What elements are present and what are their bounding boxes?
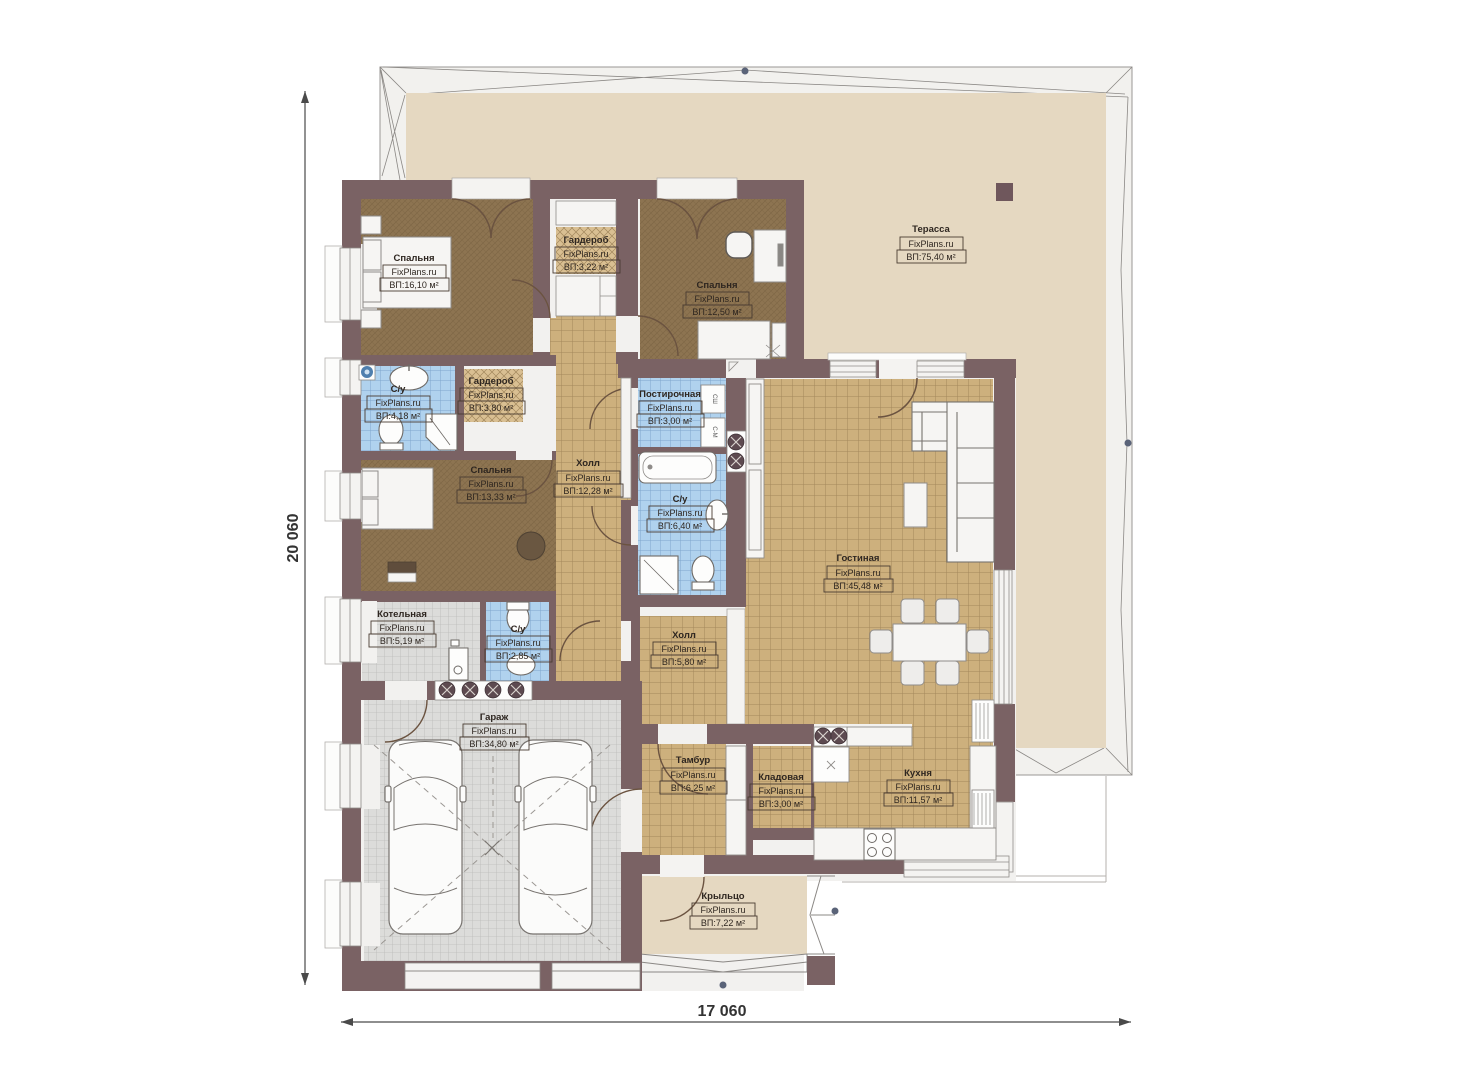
svg-text:ВП:12,50 м²: ВП:12,50 м² [692, 307, 741, 317]
svg-text:ВП:5,80 м²: ВП:5,80 м² [662, 657, 706, 667]
svg-text:ВП:4,18 м²: ВП:4,18 м² [376, 411, 420, 421]
svg-text:ВП:75,40 м²: ВП:75,40 м² [906, 252, 955, 262]
svg-text:Кладовая: Кладовая [758, 772, 804, 783]
svg-text:FixPlans.ru: FixPlans.ru [758, 786, 803, 796]
svg-text:FixPlans.ru: FixPlans.ru [468, 479, 513, 489]
svg-text:Гараж: Гараж [480, 712, 509, 723]
svg-text:FixPlans.ru: FixPlans.ru [895, 782, 940, 792]
svg-text:Гардероб: Гардероб [564, 235, 609, 246]
svg-text:FixPlans.ru: FixPlans.ru [468, 390, 513, 400]
svg-text:СШ: СШ [711, 394, 717, 404]
svg-text:Холл: Холл [576, 458, 600, 469]
svg-text:ВП:34,80 м²: ВП:34,80 м² [469, 739, 518, 749]
svg-text:Гардероб: Гардероб [469, 376, 514, 387]
svg-text:ВП:45,48 м²: ВП:45,48 м² [833, 581, 882, 591]
svg-text:ВП:2,85 м²: ВП:2,85 м² [496, 651, 540, 661]
svg-text:FixPlans.ru: FixPlans.ru [661, 644, 706, 654]
svg-text:FixPlans.ru: FixPlans.ru [647, 403, 692, 413]
svg-text:ВП:13,33 м²: ВП:13,33 м² [466, 492, 515, 502]
svg-text:С/у: С/у [673, 494, 689, 505]
svg-text:FixPlans.ru: FixPlans.ru [495, 638, 540, 648]
svg-text:FixPlans.ru: FixPlans.ru [565, 473, 610, 483]
svg-text:ВП:6,25 м²: ВП:6,25 м² [671, 783, 715, 793]
svg-text:Спальня: Спальня [470, 465, 511, 476]
svg-text:Терасса: Терасса [912, 224, 950, 235]
svg-text:FixPlans.ru: FixPlans.ru [563, 249, 608, 259]
svg-text:ВП:16,10 м²: ВП:16,10 м² [389, 280, 438, 290]
svg-text:FixPlans.ru: FixPlans.ru [391, 267, 436, 277]
svg-text:ВП:3,22 м²: ВП:3,22 м² [564, 262, 608, 272]
svg-text:ВП:3,00 м²: ВП:3,00 м² [759, 799, 803, 809]
svg-text:Котельная: Котельная [377, 609, 427, 620]
svg-text:ВП:7,22 м²: ВП:7,22 м² [701, 918, 745, 928]
svg-text:Кухня: Кухня [904, 768, 932, 779]
svg-text:ВП:12,28 м²: ВП:12,28 м² [563, 486, 612, 496]
svg-text:ВП:6,40 м²: ВП:6,40 м² [658, 521, 702, 531]
svg-text:С/у: С/у [391, 384, 407, 395]
svg-text:Крыльцо: Крыльцо [701, 891, 744, 902]
svg-text:Постирочная: Постирочная [639, 389, 701, 400]
svg-text:FixPlans.ru: FixPlans.ru [657, 508, 702, 518]
svg-text:ВП:11,57 м²: ВП:11,57 м² [894, 795, 943, 805]
svg-text:20 060: 20 060 [285, 513, 302, 562]
svg-text:Спальня: Спальня [696, 280, 737, 291]
svg-text:FixPlans.ru: FixPlans.ru [375, 398, 420, 408]
svg-text:FixPlans.ru: FixPlans.ru [700, 905, 745, 915]
svg-text:FixPlans.ru: FixPlans.ru [835, 568, 880, 578]
svg-text:С/у: С/у [511, 624, 527, 635]
svg-text:FixPlans.ru: FixPlans.ru [670, 770, 715, 780]
svg-text:Холл: Холл [672, 630, 696, 641]
svg-text:Гостиная: Гостиная [837, 553, 880, 564]
svg-text:17 060: 17 060 [698, 1003, 747, 1020]
svg-text:С-М: С-М [711, 426, 717, 437]
svg-text:FixPlans.ru: FixPlans.ru [908, 239, 953, 249]
svg-text:ВП:5,19 м²: ВП:5,19 м² [380, 636, 424, 646]
svg-text:FixPlans.ru: FixPlans.ru [471, 726, 516, 736]
svg-text:FixPlans.ru: FixPlans.ru [694, 294, 739, 304]
svg-text:Спальня: Спальня [393, 253, 434, 264]
svg-text:ВП:3,80 м²: ВП:3,80 м² [469, 403, 513, 413]
svg-text:Тамбур: Тамбур [676, 755, 711, 766]
svg-text:ВП:3,00 м²: ВП:3,00 м² [648, 416, 692, 426]
svg-text:FixPlans.ru: FixPlans.ru [379, 623, 424, 633]
